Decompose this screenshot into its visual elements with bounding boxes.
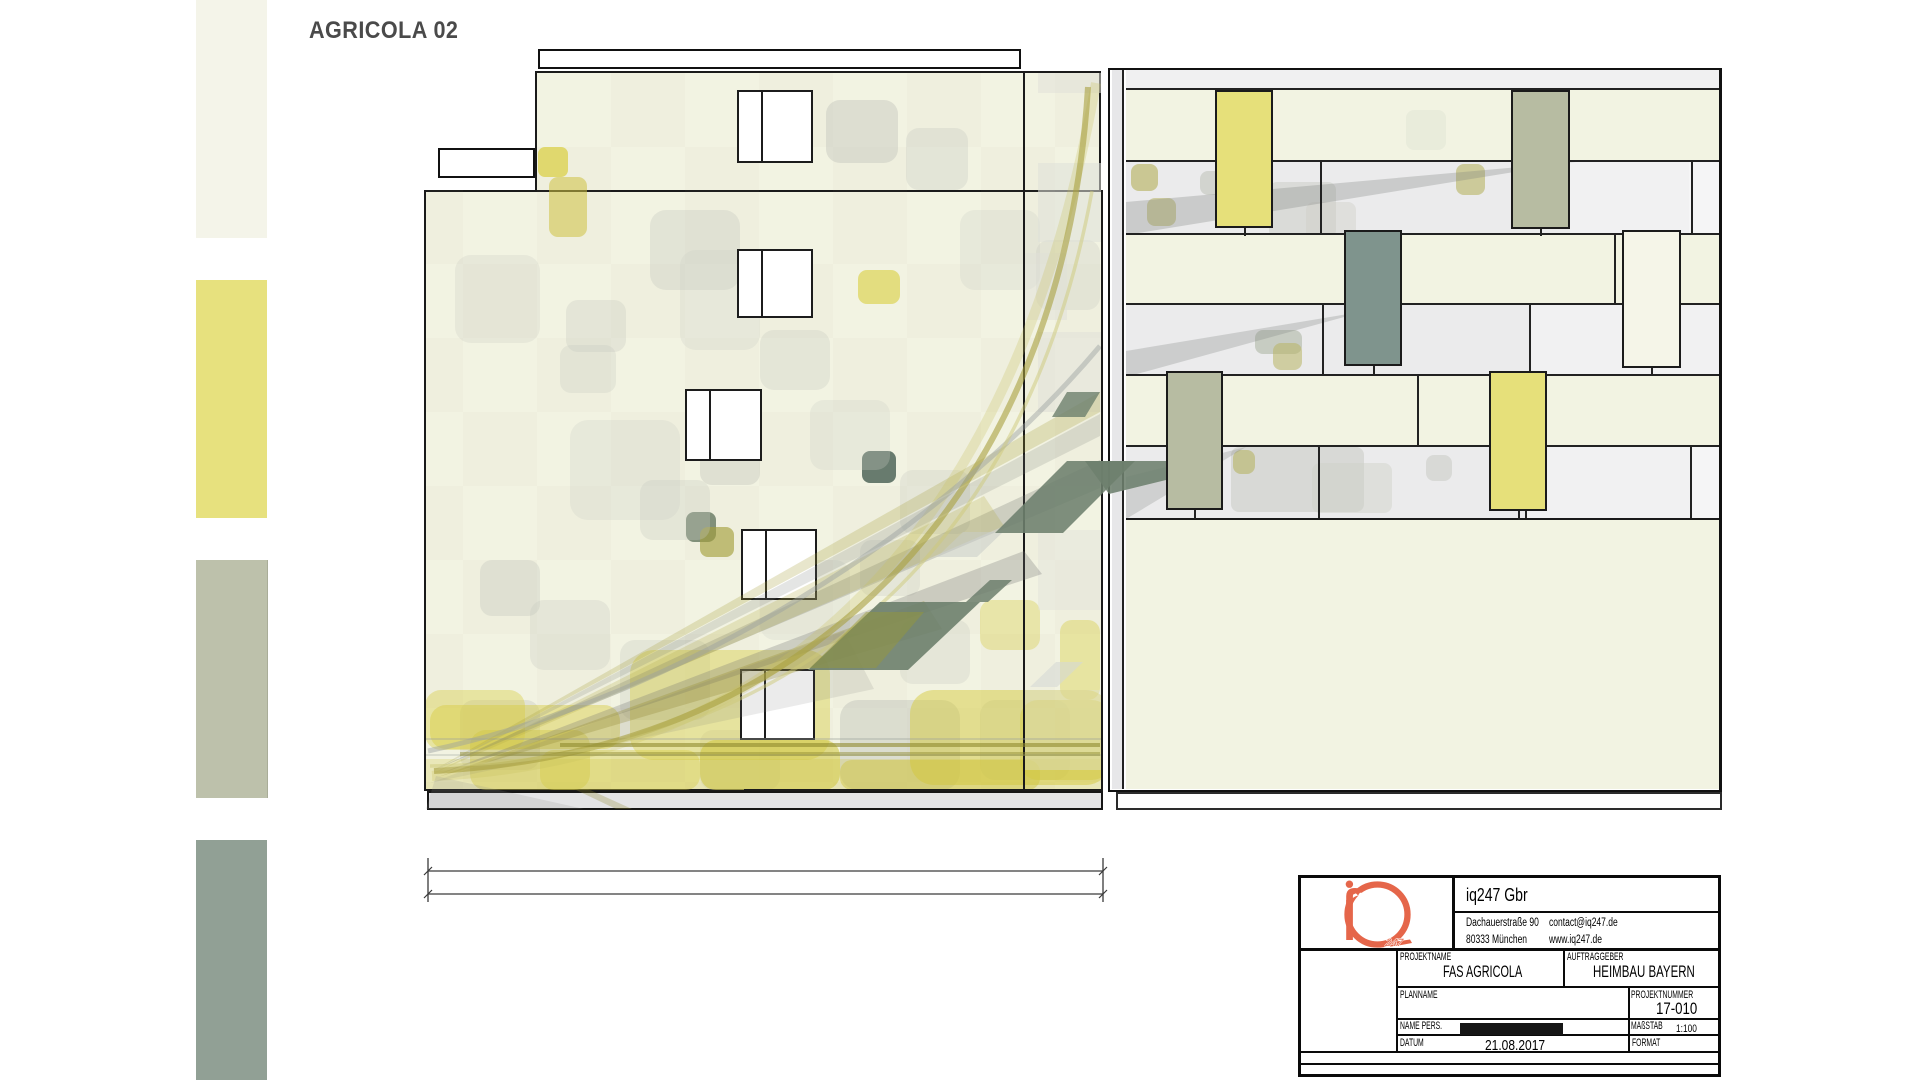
svg-text:247: 247	[1384, 937, 1405, 949]
